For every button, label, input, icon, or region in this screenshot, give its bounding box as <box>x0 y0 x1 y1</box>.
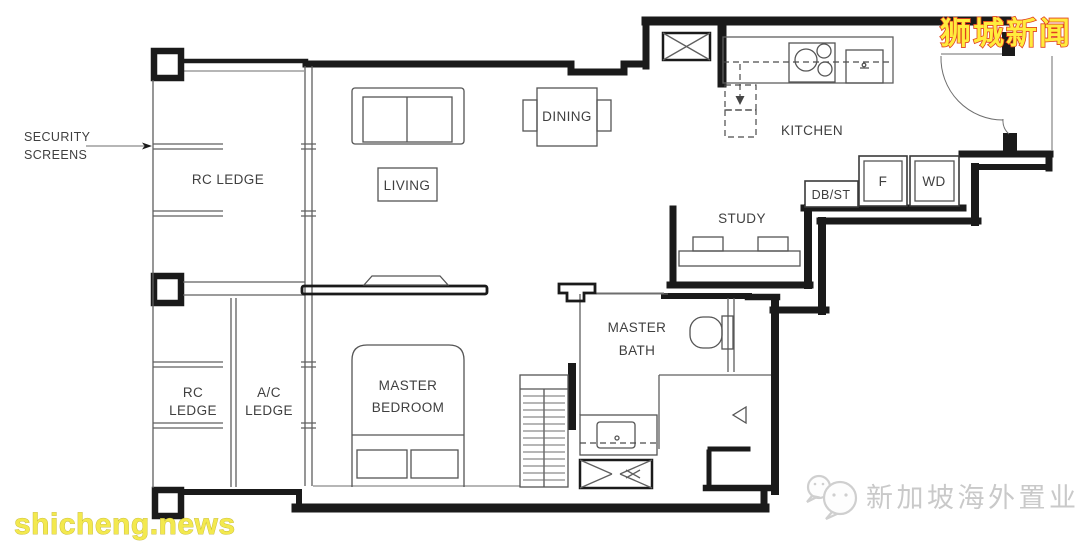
label-db-st: DB/ST <box>812 188 851 202</box>
label-rc-ledge-lower: RC <box>183 385 203 400</box>
watermark-shicheng-chinese: 狮城新闻 <box>940 16 1072 51</box>
columns <box>154 51 181 516</box>
watermark-shicheng-news: shicheng.news <box>14 508 236 541</box>
security-screens-annotation: SECURITY SCREENS <box>24 130 152 162</box>
label-ac-ledge: A/C <box>257 385 281 400</box>
label-master-bedroom: BEDROOM <box>372 400 445 415</box>
burner <box>795 49 817 71</box>
pillow <box>357 450 407 478</box>
label-living: LIVING <box>384 178 431 193</box>
dining-chair <box>523 100 537 131</box>
vanity-counter <box>580 415 657 455</box>
security-screens-label: SECURITY <box>24 130 91 144</box>
dining-chair <box>597 100 611 131</box>
label-master-bedroom: MASTER <box>379 378 438 393</box>
ledge-and-window-lines <box>153 56 1052 488</box>
pillow <box>411 450 458 478</box>
label-study: STUDY <box>718 211 766 226</box>
tv-console <box>364 276 448 285</box>
label-fridge: F <box>879 174 888 189</box>
master-bedroom-furniture <box>352 345 568 487</box>
label-rc-ledge-upper: RC LEDGE <box>192 172 264 187</box>
label-rc-ledge-lower: LEDGE <box>169 403 217 418</box>
label-washer-dryer: WD <box>922 174 945 189</box>
door-swing-arc <box>941 56 1003 120</box>
wechat-logo-icon <box>807 476 856 519</box>
interior-partitions <box>302 284 595 430</box>
burner <box>817 44 831 58</box>
study-chair <box>758 237 788 251</box>
provision-space <box>725 110 756 137</box>
shower-head <box>733 407 746 423</box>
faucet <box>615 436 619 440</box>
study-desk <box>679 251 800 266</box>
column <box>154 276 181 303</box>
wall-stub <box>559 284 595 301</box>
kitchen-counter <box>723 37 893 83</box>
burner <box>818 62 832 76</box>
label-master-bath: BATH <box>619 343 656 358</box>
sliding-partition-wall <box>302 286 487 294</box>
column <box>154 51 181 78</box>
bed <box>352 345 464 487</box>
label-kitchen: KITCHEN <box>781 123 843 138</box>
door-frame <box>1003 133 1017 152</box>
faucet <box>862 63 866 67</box>
toilet-bowl <box>690 317 722 348</box>
vanity-sink <box>597 422 635 448</box>
study-chair <box>693 237 723 251</box>
bath-pocket-door <box>568 363 576 430</box>
security-screens-label: SCREENS <box>24 148 87 162</box>
label-master-bath: MASTER <box>608 320 667 335</box>
label-ac-ledge: LEDGE <box>245 403 293 418</box>
arrow-down-icon <box>736 96 745 105</box>
kitchen-fixtures <box>663 33 893 137</box>
room-labels: RC LEDGE RC LEDGE A/C LEDGE LIVING DININ… <box>169 109 946 418</box>
wardrobe <box>520 375 568 487</box>
door-swing-arc-small <box>1003 119 1009 134</box>
label-dining: DINING <box>542 109 592 124</box>
master-bath-fixtures <box>580 316 746 488</box>
floor-plan: SECURITY SCREENS RC LEDGE RC LEDGE A/C L… <box>0 0 1080 546</box>
watermark-agency-name: 新加坡海外置业 <box>866 483 1080 513</box>
